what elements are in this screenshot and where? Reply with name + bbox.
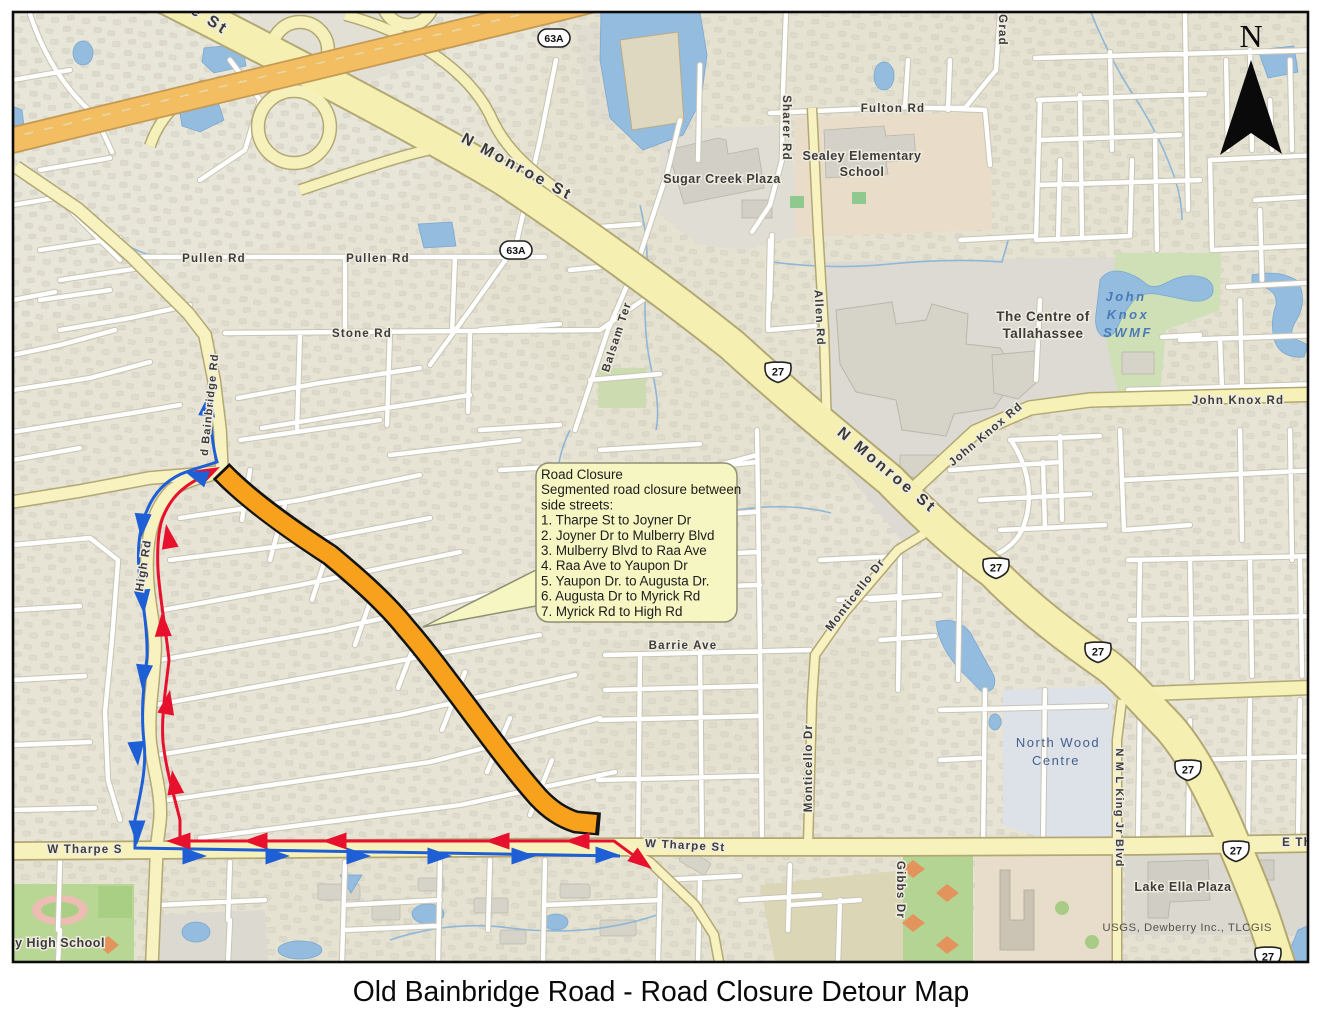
svg-text:Tallahassee: Tallahassee: [1002, 326, 1083, 341]
svg-text:W Tharpe S: W Tharpe S: [47, 844, 122, 856]
svg-text:63A: 63A: [544, 33, 564, 45]
svg-text:Pullen Rd: Pullen Rd: [346, 253, 410, 265]
svg-text:USGS, Dewberry Inc., TLCGIS: USGS, Dewberry Inc., TLCGIS: [1102, 922, 1272, 934]
svg-text:Monticello Dr: Monticello Dr: [803, 724, 815, 812]
svg-text:Grad: Grad: [996, 14, 1008, 46]
svg-text:Knox: Knox: [1107, 307, 1150, 322]
svg-text:The Centre of: The Centre of: [996, 309, 1090, 324]
svg-text:6. Augusta Dr to Myrick Rd: 6. Augusta Dr to Myrick Rd: [541, 589, 700, 604]
svg-text:John: John: [1105, 289, 1146, 304]
svg-text:side streets:: side streets:: [541, 497, 613, 512]
svg-text:Sugar Creek Plaza: Sugar Creek Plaza: [663, 172, 781, 186]
svg-text:Road Closure: Road Closure: [541, 467, 623, 482]
svg-text:4. Raa Ave to Yaupon Dr: 4. Raa Ave to Yaupon Dr: [541, 558, 688, 573]
svg-text:2. Joyner Dr to Mulberry Blvd: 2. Joyner Dr to Mulberry Blvd: [541, 528, 714, 543]
svg-text:Pullen Rd: Pullen Rd: [182, 253, 246, 265]
svg-text:Barrie Ave: Barrie Ave: [649, 640, 718, 652]
svg-text:SWMF: SWMF: [1103, 325, 1153, 340]
svg-text:John Knox Rd: John Knox Rd: [1192, 395, 1284, 407]
svg-text:N: N: [1239, 18, 1262, 54]
svg-text:1. Tharpe St to Joyner Dr: 1. Tharpe St to Joyner Dr: [541, 513, 692, 528]
svg-text:North Wood: North Wood: [1016, 735, 1100, 750]
svg-text:Segmented road closure between: Segmented road closure between: [541, 482, 741, 497]
svg-text:School: School: [840, 165, 885, 179]
svg-text:Fulton Rd: Fulton Rd: [861, 103, 925, 115]
svg-text:7. Myrick Rd to High Rd: 7. Myrick Rd to High Rd: [541, 604, 682, 619]
svg-text:y High School: y High School: [15, 936, 105, 950]
svg-text:Lake Ella Plaza: Lake Ella Plaza: [1134, 880, 1232, 894]
svg-text:Stone Rd: Stone Rd: [332, 328, 392, 340]
svg-text:5. Yaupon Dr. to Augusta Dr.: 5. Yaupon Dr. to Augusta Dr.: [541, 573, 710, 588]
svg-text:3. Mulberry Blvd to Raa Ave: 3. Mulberry Blvd to Raa Ave: [541, 543, 707, 558]
svg-text:N M L King Jr Blvd: N M L King Jr Blvd: [1113, 748, 1125, 867]
svg-text:Old Bainbridge Road - Road Clo: Old Bainbridge Road - Road Closure Detou…: [353, 975, 970, 1007]
svg-text:Gibbs Dr: Gibbs Dr: [894, 861, 906, 919]
svg-text:Sharer Rd: Sharer Rd: [780, 95, 792, 161]
svg-text:Sealey Elementary: Sealey Elementary: [803, 149, 922, 163]
svg-text:Centre: Centre: [1032, 753, 1080, 768]
